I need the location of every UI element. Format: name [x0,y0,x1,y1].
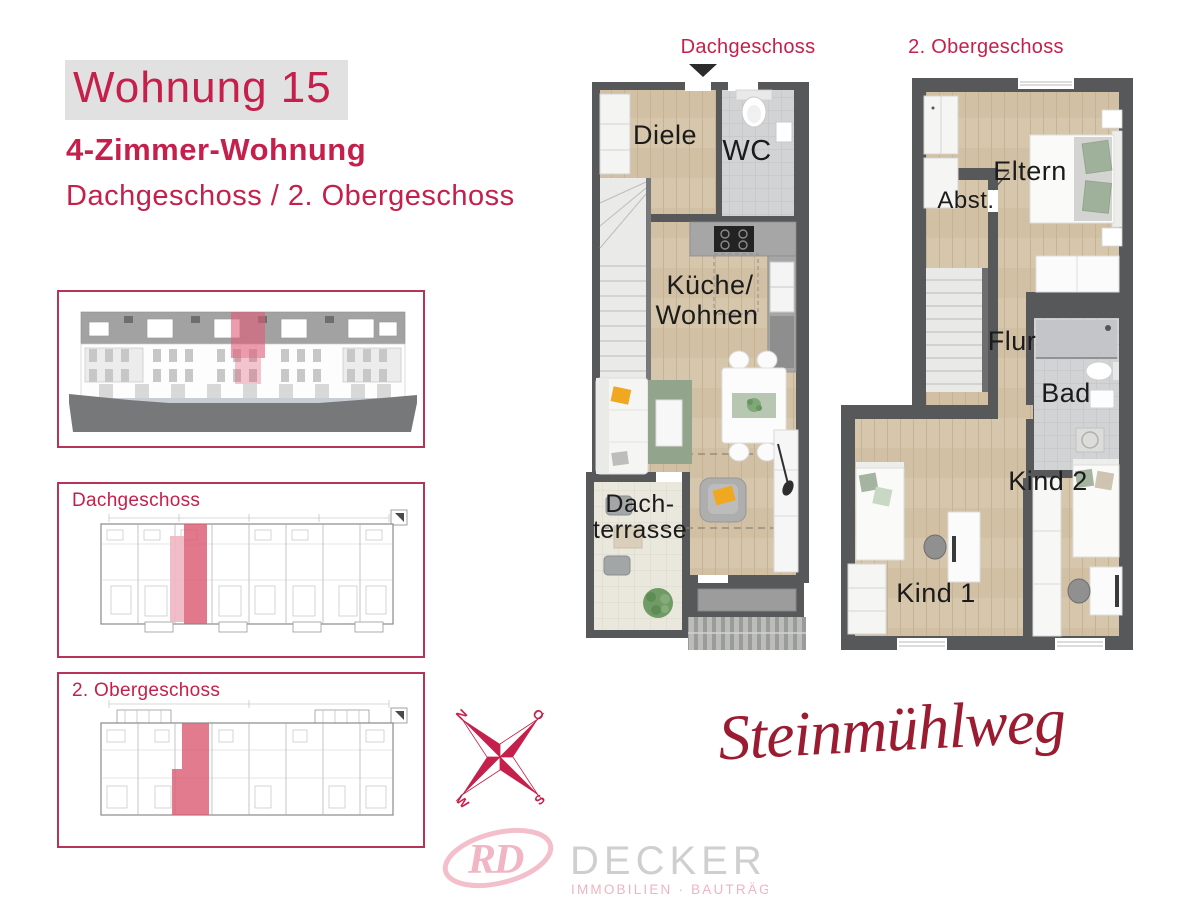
page-title: Wohnung 15 [65,60,348,120]
elevation-unit-highlight [231,312,265,384]
compass-rose: N O S W [438,696,562,820]
compass-icon: N O S W [438,696,562,820]
dachgeschoss-plan-drawing: Diele WC Küche/ Wohnen Dach- terrasse [586,58,814,654]
armchair [700,478,746,522]
room-label-kueche-line1: Küche/ [666,270,753,300]
obergeschoss-plan-drawing: Eltern Abst. Flur Bad Kind 2 Kind 1 [836,58,1136,654]
entrance-marker-icon [689,64,717,77]
decker-logo: RD DECKER IMMOBILIEN · BAUTRÄGER [438,820,768,900]
bad-shower [1036,320,1117,358]
building-elevation-drawing [59,292,423,446]
dachgeschoss-floor-plan: Diele WC Küche/ Wohnen Dach- terrasse [586,58,814,654]
compass-star [462,719,538,795]
sideboard [774,430,798,572]
cooktop [714,226,754,252]
floors-subtitle: Dachgeschoss / 2. Obergeschoss [66,180,515,213]
compass-s: S [531,791,548,808]
room-label-kind1: Kind 1 [896,578,976,608]
bad-sink [1090,390,1114,408]
living-rug [648,380,692,464]
obergeschoss-floor-plan: Eltern Abst. Flur Bad Kind 2 Kind 1 [836,58,1136,654]
og-ov-dimension-lines [109,700,389,708]
room-label-wc: WC [722,135,771,167]
decker-tagline: IMMOBILIEN · BAUTRÄGER [571,882,768,897]
obergeschoss-overview-drawing [59,674,423,846]
room-label-flur: Flur [988,326,1037,356]
balcony-floor [698,589,796,611]
og-stairs [926,268,988,392]
bad-washer [1076,428,1104,452]
fridge [770,262,794,312]
dachgeschoss-plan-title: Dachgeschoss [638,36,858,59]
building-elevation-box [57,290,425,448]
flur-dresser [1036,256,1119,292]
obergeschoss-overview-box: 2. Obergeschoss [57,672,425,848]
sofa [596,378,648,474]
room-label-eltern: Eltern [993,156,1067,186]
room-label-terrasse-line2: terrasse [593,516,687,544]
room-label-terrasse-line1: Dach- [605,490,674,518]
flur-passage-floor [998,405,1033,419]
compass-o: O [529,706,547,724]
room-label-kueche-line2: Wohnen [655,300,758,330]
decker-logo-graphic: RD DECKER IMMOBILIEN · BAUTRÄGER [438,820,768,900]
room-label-abst: Abst. [937,187,994,214]
svg-text:RD: RD [467,837,524,883]
street-name: Steinmühlweg [716,679,1159,776]
room-label-bad: Bad [1041,378,1091,408]
compass-w: W [453,792,473,812]
kind1-wardrobe [848,564,886,634]
dg-stairs [600,178,651,400]
diele-wardrobe [600,94,630,174]
decker-wordmark: DECKER [570,839,767,883]
obergeschoss-plan-title: 2. Obergeschoss [836,36,1136,59]
kids-wardrobe-column [1033,478,1061,636]
room-label-kind2: Kind 2 [1008,466,1088,496]
dg-ov-dimension-lines [109,514,389,522]
og-ov-outline [101,723,393,815]
kind1-bed [856,462,904,560]
compass-n: N [453,706,470,723]
bad-toilet [1086,362,1119,380]
apartment-type-subtitle: 4-Zimmer-Wohnung [66,132,366,168]
room-label-diele: Diele [633,120,697,150]
og-ov-balconies [117,710,369,723]
dg-ov-unit-highlight [170,524,207,624]
decker-monogram-icon: RD [440,821,557,896]
dachgeschoss-overview-drawing [59,484,423,656]
terrace-plant-icon [643,588,673,618]
dachgeschoss-overview-box: Dachgeschoss [57,482,425,658]
wc-sink [776,122,792,142]
